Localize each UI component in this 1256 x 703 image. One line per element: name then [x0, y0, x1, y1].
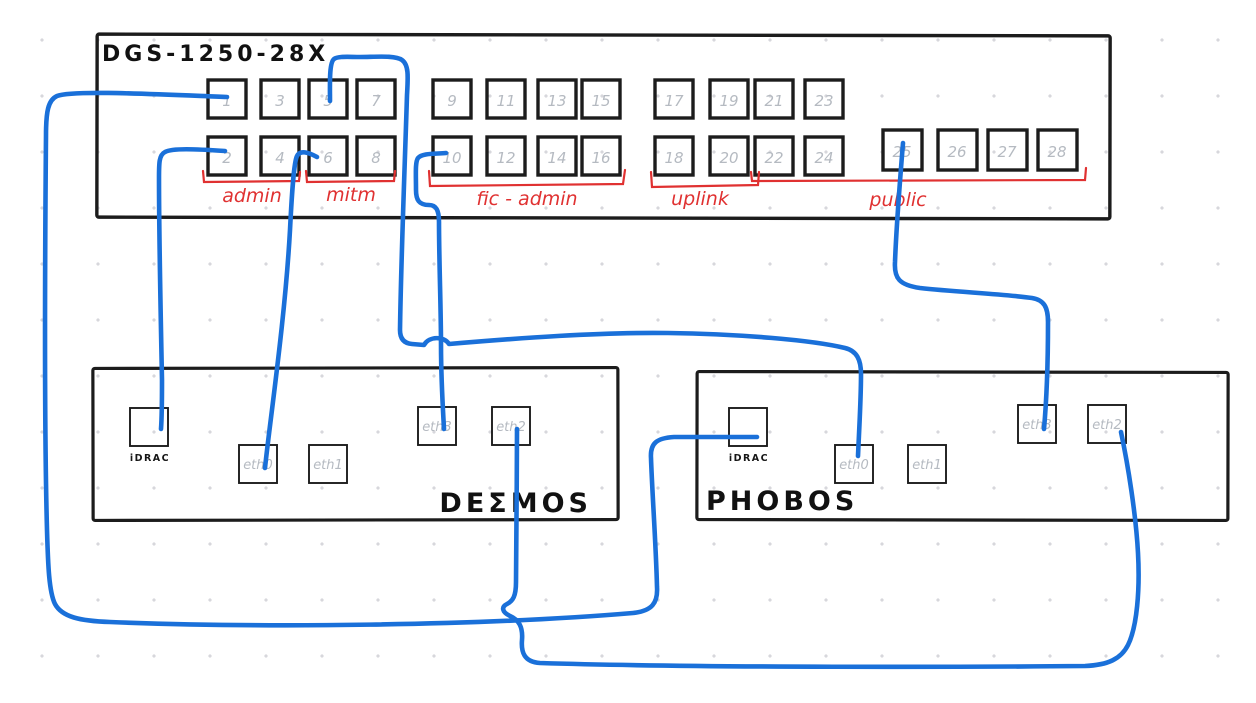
switch-ports-sfp-row: 25 26 27 28: [883, 130, 1077, 170]
port-number: 27: [997, 143, 1017, 161]
group-label-mitm: mitm: [326, 184, 376, 206]
phobos-eth0-label: eth0: [839, 458, 869, 473]
phobos-name: PHOBOS: [706, 486, 858, 517]
port-number: 6: [323, 149, 333, 167]
port-number: 19: [719, 92, 738, 110]
group-label-uplink: uplink: [671, 188, 730, 210]
switch-ports-bottom-row: 2 4 6 8 10 12 14 16 18 20 22 24: [208, 137, 843, 175]
cable-port25-phobos-eth3: [895, 143, 1048, 429]
whiteboard-canvas: DGS-1250-28X 1 3 5 7 9 11 13 15 17 19 21: [0, 0, 1256, 703]
port-number: 8: [371, 149, 381, 167]
cable-port10-deimos-eth3: [416, 153, 446, 429]
port-number: 26: [947, 143, 966, 161]
port-number: 14: [547, 149, 566, 167]
switch-ports-top-row: 1 3 5 7 9 11 13 15 17 19 21 23: [208, 80, 843, 118]
phobos-eth1-label: eth1: [912, 458, 942, 473]
phobos-port-idrac: [729, 408, 767, 446]
deimos-eth1-label: eth1: [313, 458, 343, 473]
deimos-eth0-label: eth0: [243, 458, 273, 473]
switch-dgs-1250-28x: DGS-1250-28X 1 3 5 7 9 11 13 15 17 19 21: [97, 34, 1110, 219]
deimos-eth3-label: eth3: [422, 420, 452, 435]
deimos-idrac-label: iDRAC: [130, 453, 170, 464]
phobos-idrac-label: iDRAC: [729, 453, 769, 464]
phobos-eth3-label: eth3: [1022, 418, 1052, 433]
port-number: 3: [275, 92, 285, 110]
port-number: 24: [814, 149, 833, 167]
cable-deimos-eth2-phobos-eth2: [503, 429, 1138, 667]
cable-port2-deimos-idrac: [159, 149, 225, 429]
server-deimos: iDRAC eth0 eth1 eth3 eth2 DEΣMOS: [93, 368, 618, 521]
port-number: 9: [447, 92, 457, 110]
port-number: 17: [664, 92, 684, 110]
port-number: 12: [496, 149, 515, 167]
port-number: 7: [371, 92, 381, 110]
port-number: 22: [764, 149, 783, 167]
port-number: 13: [547, 92, 566, 110]
port-number: 16: [591, 149, 610, 167]
phobos-eth2-label: eth2: [1092, 418, 1122, 433]
port-number: 21: [764, 92, 783, 110]
network-diagram: DGS-1250-28X 1 3 5 7 9 11 13 15 17 19 21: [0, 0, 1256, 703]
port-number: 20: [719, 149, 738, 167]
port-number: 4: [275, 149, 285, 167]
switch-title: DGS-1250-28X: [102, 42, 329, 67]
group-label-fic-admin: fic - admin: [476, 188, 577, 210]
port-number: 11: [496, 92, 515, 110]
server-phobos: iDRAC eth0 eth1 eth3 eth2 PHOBOS: [697, 372, 1228, 521]
deimos-eth2-label: eth2: [496, 420, 526, 435]
group-label-admin: admin: [222, 185, 282, 207]
port-number: 23: [814, 92, 833, 110]
port-number: 15: [591, 92, 610, 110]
port-number: 28: [1047, 143, 1066, 161]
bracket-fic-admin: [429, 170, 625, 186]
port-number: 18: [664, 149, 683, 167]
